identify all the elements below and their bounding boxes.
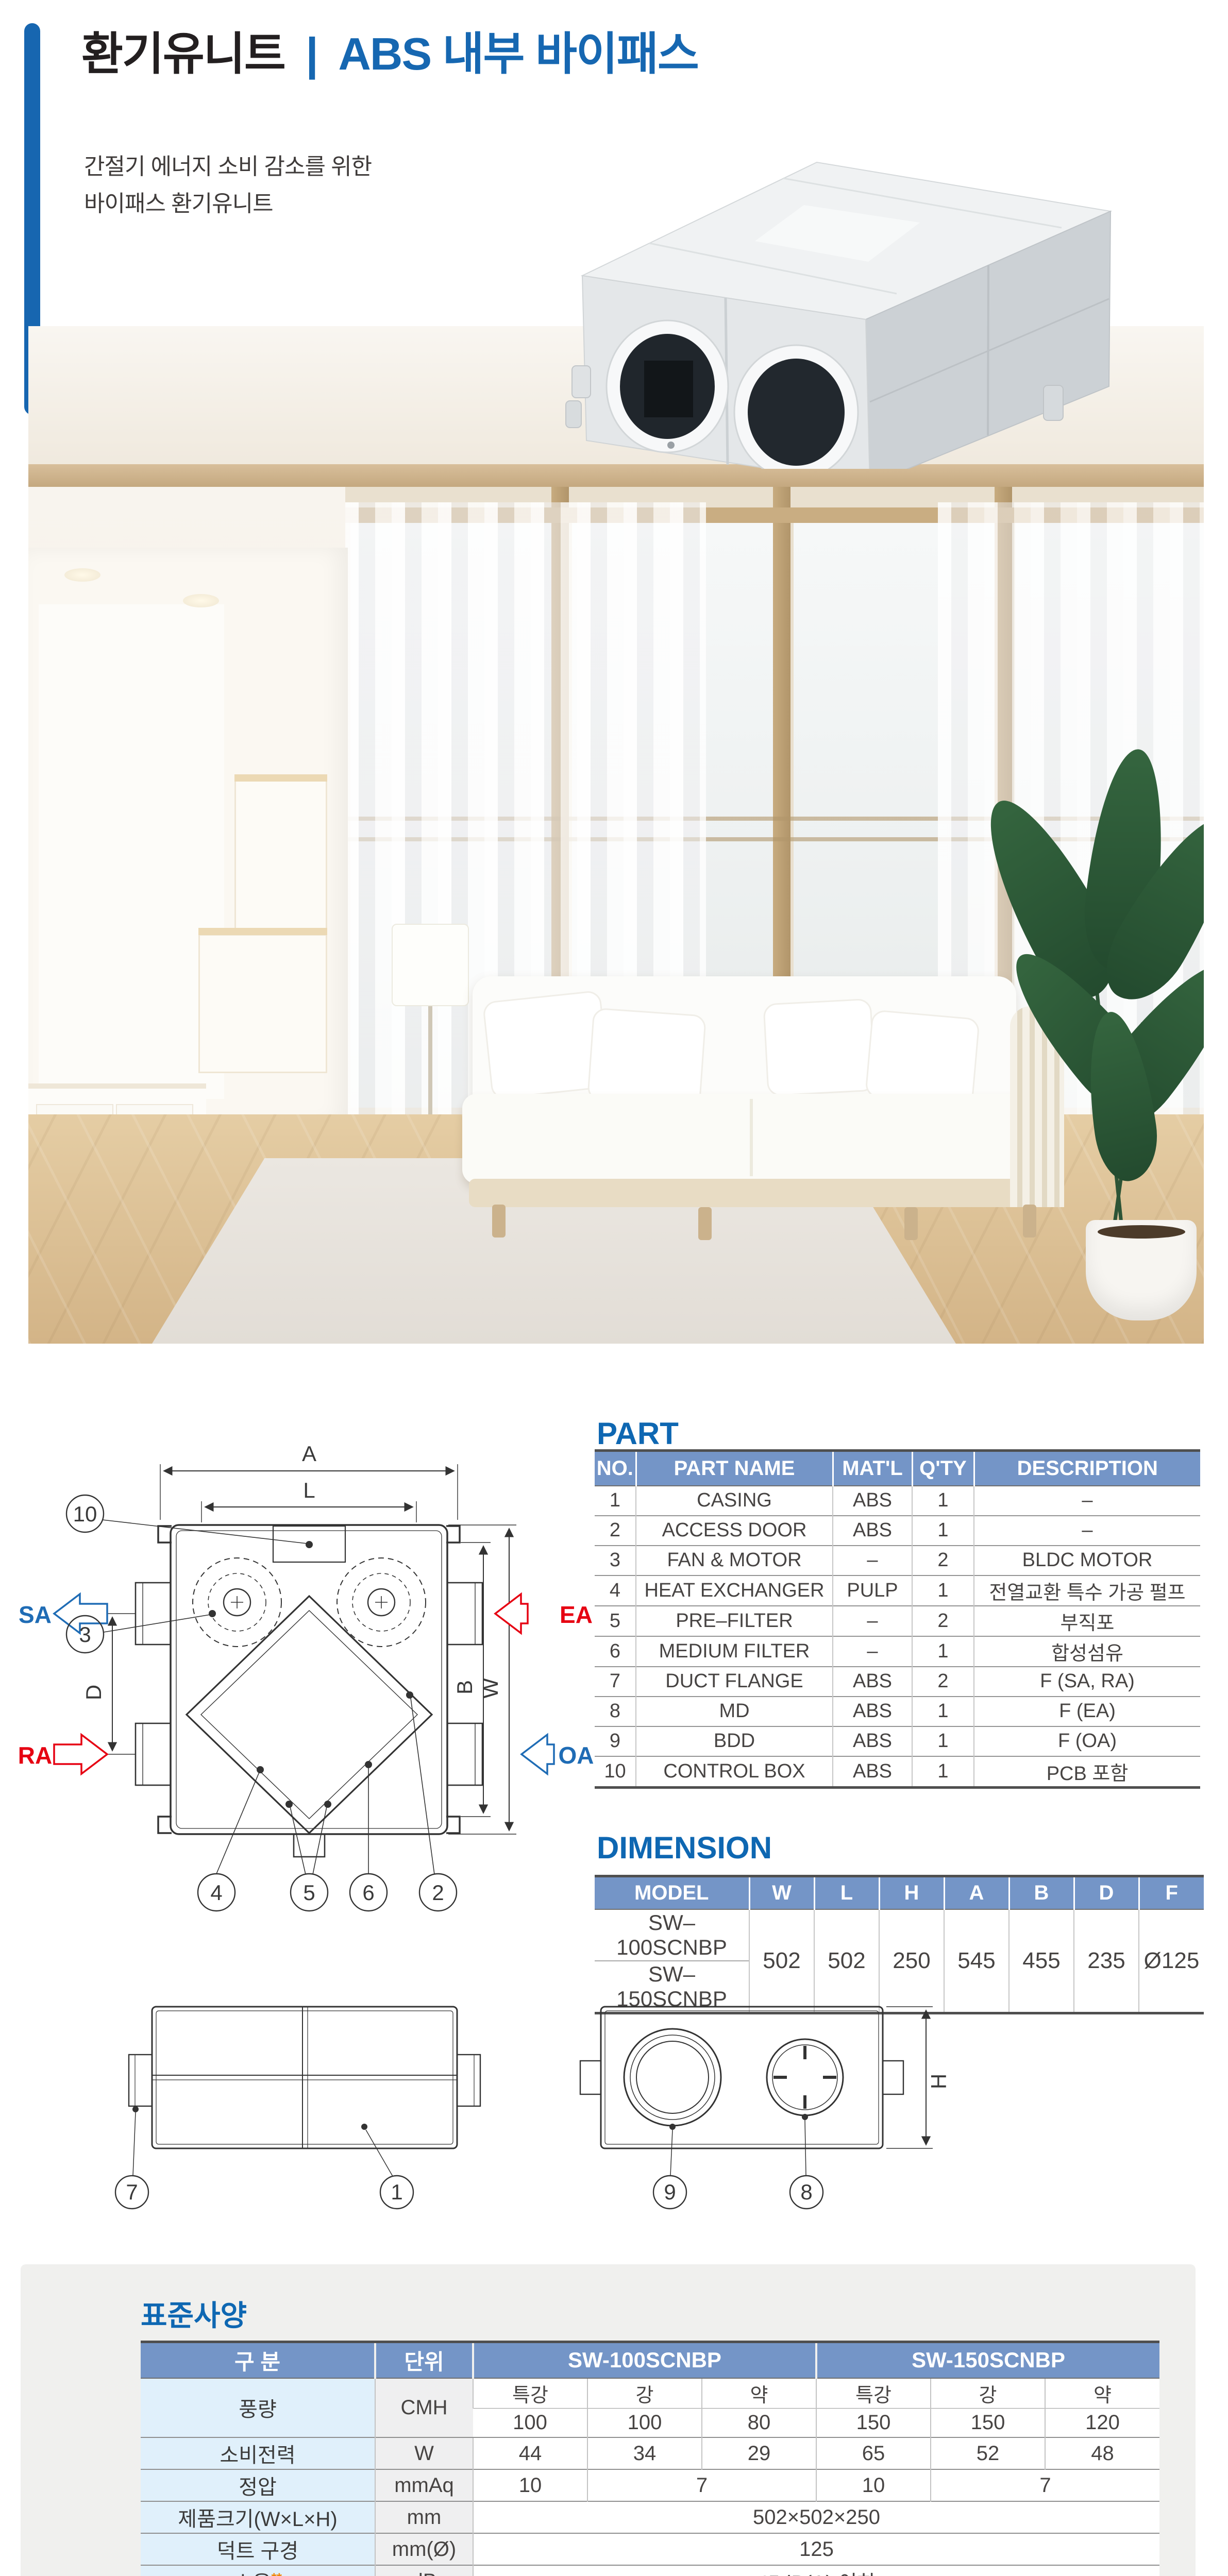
cell: 10 bbox=[473, 2469, 587, 2501]
table-row: 10CONTROL BOXABS1PCB 포함 bbox=[595, 1756, 1200, 1788]
cell: 2 bbox=[912, 1667, 974, 1697]
cell: – bbox=[833, 1636, 912, 1667]
table-row: 제품크기(W×L×H) mm 502×502×250 bbox=[141, 2501, 1159, 2533]
fan-right bbox=[337, 1558, 426, 1647]
row-unit: W bbox=[375, 2437, 473, 2469]
row-label: 덕트 구경 bbox=[141, 2533, 375, 2565]
flow-ea: EA bbox=[495, 1594, 593, 1633]
spec-heading: 표준사양 bbox=[141, 2293, 247, 2334]
flow-oa: OA bbox=[522, 1735, 594, 1774]
flow-label-sa: SA bbox=[19, 1601, 52, 1628]
dim-label-b: B bbox=[452, 1680, 477, 1694]
title-divider: | bbox=[306, 28, 317, 79]
row-unit: mm(Ø) bbox=[375, 2533, 473, 2565]
sofa-seat bbox=[462, 1094, 1045, 1184]
cell: 29 bbox=[702, 2437, 816, 2469]
cell: ABS bbox=[833, 1516, 912, 1546]
col-header: F bbox=[1139, 1876, 1204, 1909]
col-header: B bbox=[1009, 1876, 1074, 1909]
cell: 10 bbox=[595, 1756, 636, 1788]
flow-label-ra: RA bbox=[18, 1742, 52, 1769]
flow-arrow-ea bbox=[495, 1594, 528, 1633]
row-unit: mmAq bbox=[375, 2469, 473, 2501]
table-row: 3FAN & MOTOR–2BLDC MOTOR bbox=[595, 1546, 1200, 1575]
col-header: MODEL bbox=[595, 1876, 749, 1909]
flow-arrow-ra bbox=[54, 1735, 107, 1774]
flow-arrow-oa bbox=[522, 1735, 554, 1774]
front-view-flanges bbox=[580, 2061, 903, 2094]
table-row: 8MDABS1F (EA) bbox=[595, 1697, 1200, 1726]
dimension-heading: DIMENSION bbox=[597, 1830, 772, 1866]
table-row: 6MEDIUM FILTER–1합성섬유 bbox=[595, 1636, 1200, 1667]
table-row: 4HEAT EXCHANGERPULP1전열교환 특수 가공 펄프 bbox=[595, 1575, 1200, 1606]
shelf-wood-top bbox=[234, 774, 327, 782]
cell: PCB 포함 bbox=[974, 1756, 1200, 1788]
cell: 부직포 bbox=[974, 1606, 1200, 1636]
ceiling-spotlight bbox=[183, 594, 219, 607]
table-row: 덕트 구경 mm(Ø) 125 bbox=[141, 2533, 1159, 2565]
shelf-box bbox=[198, 934, 327, 1073]
shelf-box bbox=[234, 779, 327, 934]
cell: 65 bbox=[816, 2437, 931, 2469]
noise-label: 소음 bbox=[233, 2572, 272, 2576]
model-cell: SW–100SCNBP bbox=[595, 1909, 749, 1961]
cell: FAN & MOTOR bbox=[636, 1546, 833, 1575]
fan-left bbox=[193, 1558, 281, 1647]
table-row: 9BDDABS1F (OA) bbox=[595, 1726, 1200, 1756]
cell: 2 bbox=[912, 1606, 974, 1636]
page-title: 환기유니트 | ABS 내부 바이패스 bbox=[81, 18, 698, 83]
cell: 강 bbox=[587, 2378, 702, 2409]
callout-6: 6 bbox=[362, 1880, 374, 1905]
row-label: 소비전력 bbox=[141, 2437, 375, 2469]
cell: 6 bbox=[595, 1636, 636, 1667]
callout-9: 9 bbox=[664, 2180, 676, 2204]
callout-10: 10 bbox=[73, 1502, 97, 1526]
sofa-pillow bbox=[763, 998, 876, 1097]
cell: 특강 bbox=[816, 2378, 931, 2409]
cell: 합성섬유 bbox=[974, 1636, 1200, 1667]
cell: 1 bbox=[912, 1697, 974, 1726]
table-row: 5PRE–FILTER–2부직포 bbox=[595, 1606, 1200, 1636]
col-header-model-100: SW-100SCNBP bbox=[473, 2342, 816, 2378]
cell: 1 bbox=[912, 1636, 974, 1667]
spec-panel: 표준사양 구 분 단위 SW-100SCNBP SW-150SCNBP 풍량 C… bbox=[21, 2264, 1196, 2576]
cell: 3 bbox=[595, 1546, 636, 1575]
dim-label-h: H bbox=[927, 2074, 951, 2089]
sofa-leg bbox=[492, 1205, 506, 1238]
sofa-leg bbox=[1023, 1205, 1036, 1238]
cell: 4 bbox=[595, 1575, 636, 1606]
table-row: 풍량 CMH 특강 강 약 특강 강 약 bbox=[141, 2378, 1159, 2409]
port-left-inner-shadow bbox=[644, 361, 693, 417]
cell: F (EA) bbox=[974, 1697, 1200, 1726]
cell: 120 bbox=[1045, 2408, 1159, 2437]
cell: 1 bbox=[912, 1756, 974, 1788]
table-row: 정압 mmAq 10 7 10 7 bbox=[141, 2469, 1159, 2501]
cell: 2 bbox=[912, 1546, 974, 1575]
alcove-panel bbox=[39, 604, 224, 1099]
col-header: PART NAME bbox=[636, 1451, 833, 1486]
bdd-port bbox=[624, 2029, 721, 2126]
duct-port-right-opening bbox=[748, 359, 845, 466]
cell: 1 bbox=[912, 1486, 974, 1516]
cell: 34 bbox=[587, 2437, 702, 2469]
callout-2: 2 bbox=[432, 1880, 444, 1905]
dim-label-d: D bbox=[81, 1685, 106, 1700]
table-row: 소비전력 W 44 34 29 65 52 48 bbox=[141, 2437, 1159, 2469]
front-view-body bbox=[601, 2007, 883, 2148]
sofa-leg bbox=[904, 1207, 918, 1240]
dim-h: H bbox=[886, 2007, 951, 2148]
col-header: H bbox=[879, 1876, 944, 1909]
callouts: 10 3 4 5 6 2 bbox=[66, 1495, 457, 1911]
cell: 5 bbox=[595, 1606, 636, 1636]
unit-outline bbox=[171, 1525, 447, 1834]
row-unit: CMH bbox=[375, 2378, 473, 2438]
callout-7: 7 bbox=[126, 2180, 138, 2204]
spec-header-row: 구 분 단위 SW-100SCNBP SW-150SCNBP bbox=[141, 2342, 1159, 2378]
product-spec-page: 환기유니트 | ABS 내부 바이패스 간절기 에너지 소비 감소를 위한 바이… bbox=[0, 0, 1228, 2576]
cell: 1 bbox=[912, 1575, 974, 1606]
callout-5: 5 bbox=[303, 1880, 315, 1905]
sofa-seat-split bbox=[750, 1099, 753, 1176]
cell: 8 bbox=[595, 1697, 636, 1726]
subtitle-line-1: 간절기 에너지 소비 감소를 위한 bbox=[84, 148, 372, 185]
duct-stubs bbox=[136, 1583, 482, 1857]
cell: 100 bbox=[587, 2408, 702, 2437]
md-port bbox=[767, 2039, 843, 2115]
row-unit: mm bbox=[375, 2501, 473, 2533]
sofa-pillow bbox=[587, 1008, 706, 1108]
col-header: L bbox=[814, 1876, 879, 1909]
flow-label-ea: EA bbox=[560, 1601, 593, 1628]
sofa-base bbox=[469, 1179, 1038, 1207]
col-header: A bbox=[944, 1876, 1009, 1909]
cell: PRE–FILTER bbox=[636, 1606, 833, 1636]
sofa-pillow bbox=[865, 1009, 980, 1106]
side-view-body bbox=[152, 2007, 457, 2148]
cell: 9 bbox=[595, 1726, 636, 1756]
dim-label-w: W bbox=[478, 1678, 502, 1699]
part-table: NO. PART NAME MAT'L Q'TY DESCRIPTION 1CA… bbox=[595, 1449, 1200, 1789]
drawing-side-view: 7 1 bbox=[77, 1994, 490, 2215]
row-label: 제품크기(W×L×H) bbox=[141, 2501, 375, 2533]
cell: 7 bbox=[595, 1667, 636, 1697]
row-label: 정압 bbox=[141, 2469, 375, 2501]
dim-label-a: A bbox=[302, 1442, 316, 1466]
cell: 100 bbox=[473, 2408, 587, 2437]
dim-label-l: L bbox=[303, 1478, 315, 1502]
col-header: Q'TY bbox=[912, 1451, 974, 1486]
floor-lamp-shade bbox=[392, 924, 469, 1006]
cell: 2 bbox=[595, 1516, 636, 1546]
callout-8: 8 bbox=[800, 2180, 812, 2204]
row-label-noise: 소음** bbox=[141, 2565, 375, 2576]
cell: F (SA, RA) bbox=[974, 1667, 1200, 1697]
cell: ABS bbox=[833, 1726, 912, 1756]
cell: DUCT FLANGE bbox=[636, 1667, 833, 1697]
cell: 1 bbox=[595, 1486, 636, 1516]
cell: 약 bbox=[1045, 2378, 1159, 2409]
cell: 150 bbox=[931, 2408, 1045, 2437]
cell: 1 bbox=[912, 1516, 974, 1546]
spec-table: 구 분 단위 SW-100SCNBP SW-150SCNBP 풍량 CMH 특강… bbox=[141, 2341, 1159, 2576]
subtitle-line-2: 바이패스 환기유니트 bbox=[84, 185, 372, 223]
mounting-clip-right bbox=[1044, 385, 1063, 420]
col-header: 단위 bbox=[375, 2342, 473, 2378]
cell: 48 bbox=[1045, 2437, 1159, 2469]
col-header: W bbox=[749, 1876, 814, 1909]
table-row: SW–100SCNBP 502 502 250 545 455 235 Ø125 bbox=[595, 1909, 1204, 1961]
cell: HEAT EXCHANGER bbox=[636, 1575, 833, 1606]
drawing-top-view: A L D B W S bbox=[0, 1432, 598, 1927]
col-header: MAT'L bbox=[833, 1451, 912, 1486]
cell: CASING bbox=[636, 1486, 833, 1516]
cell: 52 bbox=[931, 2437, 1045, 2469]
row-label: 풍량 bbox=[141, 2378, 375, 2438]
flow-label-oa: OA bbox=[559, 1742, 594, 1769]
cell: MEDIUM FILTER bbox=[636, 1636, 833, 1667]
cell: 235 bbox=[1074, 1909, 1139, 2013]
callout-3: 3 bbox=[79, 1622, 91, 1647]
ceiling-spotlight bbox=[64, 568, 100, 582]
table-row: 2ACCESS DOORABS1– bbox=[595, 1516, 1200, 1546]
callout-4: 4 bbox=[210, 1880, 222, 1905]
cell: 7 bbox=[587, 2469, 816, 2501]
side-view-flanges bbox=[129, 2055, 480, 2106]
mounting-clip-left bbox=[572, 366, 591, 398]
col-header-model-150: SW-150SCNBP bbox=[816, 2342, 1159, 2378]
table-row: 소음** dB 45dB(A) 이하 bbox=[141, 2565, 1159, 2576]
plant-soil bbox=[1098, 1225, 1185, 1239]
mounting-clip-left-2 bbox=[566, 401, 581, 428]
dim-l: L bbox=[201, 1478, 416, 1522]
cell: MD bbox=[636, 1697, 833, 1726]
title-product-type: 환기유니트 bbox=[81, 28, 285, 79]
col-header: NO. bbox=[595, 1451, 636, 1486]
cell: 150 bbox=[816, 2408, 931, 2437]
page-subtitle: 간절기 에너지 소비 감소를 위한 바이패스 환기유니트 bbox=[84, 148, 372, 223]
flow-ra: RA bbox=[18, 1735, 107, 1774]
row-unit: dB bbox=[375, 2565, 473, 2576]
table-row: 1CASINGABS1– bbox=[595, 1486, 1200, 1516]
cell: 1 bbox=[912, 1726, 974, 1756]
sofa-leg bbox=[698, 1207, 712, 1240]
cell: ABS bbox=[833, 1486, 912, 1516]
shelf-wood-top bbox=[198, 928, 327, 935]
noise-footnote-mark: ** bbox=[272, 2570, 282, 2576]
cell: – bbox=[974, 1486, 1200, 1516]
cell: 44 bbox=[473, 2437, 587, 2469]
cell: Ø125 bbox=[1139, 1909, 1204, 2013]
cell: – bbox=[833, 1606, 912, 1636]
callout-1: 1 bbox=[391, 2180, 402, 2204]
cell: ABS bbox=[833, 1756, 912, 1788]
cell: 특강 bbox=[473, 2378, 587, 2409]
cell: 80 bbox=[702, 2408, 816, 2437]
cell: – bbox=[974, 1516, 1200, 1546]
port-screw bbox=[667, 442, 675, 449]
table-row: 7DUCT FLANGEABS2F (SA, RA) bbox=[595, 1667, 1200, 1697]
flow-sa: SA bbox=[19, 1594, 107, 1633]
cell: 502×502×250 bbox=[473, 2501, 1159, 2533]
cell: 125 bbox=[473, 2533, 1159, 2565]
drawing-front-view: H 9 8 bbox=[567, 1994, 1031, 2215]
col-header: DESCRIPTION bbox=[974, 1451, 1200, 1486]
cell: 45dB(A) 이하 bbox=[473, 2565, 1159, 2576]
part-heading: PART bbox=[597, 1416, 679, 1451]
heat-exchanger-diamond bbox=[187, 1596, 432, 1833]
cell: 약 bbox=[702, 2378, 816, 2409]
cell: ACCESS DOOR bbox=[636, 1516, 833, 1546]
cell: BDD bbox=[636, 1726, 833, 1756]
product-image bbox=[536, 144, 1149, 469]
cell: PULP bbox=[833, 1575, 912, 1606]
dim-w: W bbox=[448, 1525, 516, 1834]
cell: F (OA) bbox=[974, 1726, 1200, 1756]
cell: 전열교환 특수 가공 펄프 bbox=[974, 1575, 1200, 1606]
cell: ABS bbox=[833, 1697, 912, 1726]
cell: 10 bbox=[816, 2469, 931, 2501]
title-model-type: ABS 내부 바이패스 bbox=[338, 28, 698, 79]
dimension-header-row: MODEL W L H A B D F bbox=[595, 1876, 1204, 1909]
cell: ABS bbox=[833, 1667, 912, 1697]
cell: – bbox=[833, 1546, 912, 1575]
cell: 7 bbox=[931, 2469, 1159, 2501]
dimension-table: MODEL W L H A B D F SW–100SCNBP 502 502 … bbox=[595, 1875, 1204, 2014]
col-header: D bbox=[1074, 1876, 1139, 1909]
part-table-header-row: NO. PART NAME MAT'L Q'TY DESCRIPTION bbox=[595, 1451, 1200, 1486]
cell: 강 bbox=[931, 2378, 1045, 2409]
room-photo bbox=[28, 326, 1204, 1344]
col-header: 구 분 bbox=[141, 2342, 375, 2378]
cell: BLDC MOTOR bbox=[974, 1546, 1200, 1575]
cell: CONTROL BOX bbox=[636, 1756, 833, 1788]
